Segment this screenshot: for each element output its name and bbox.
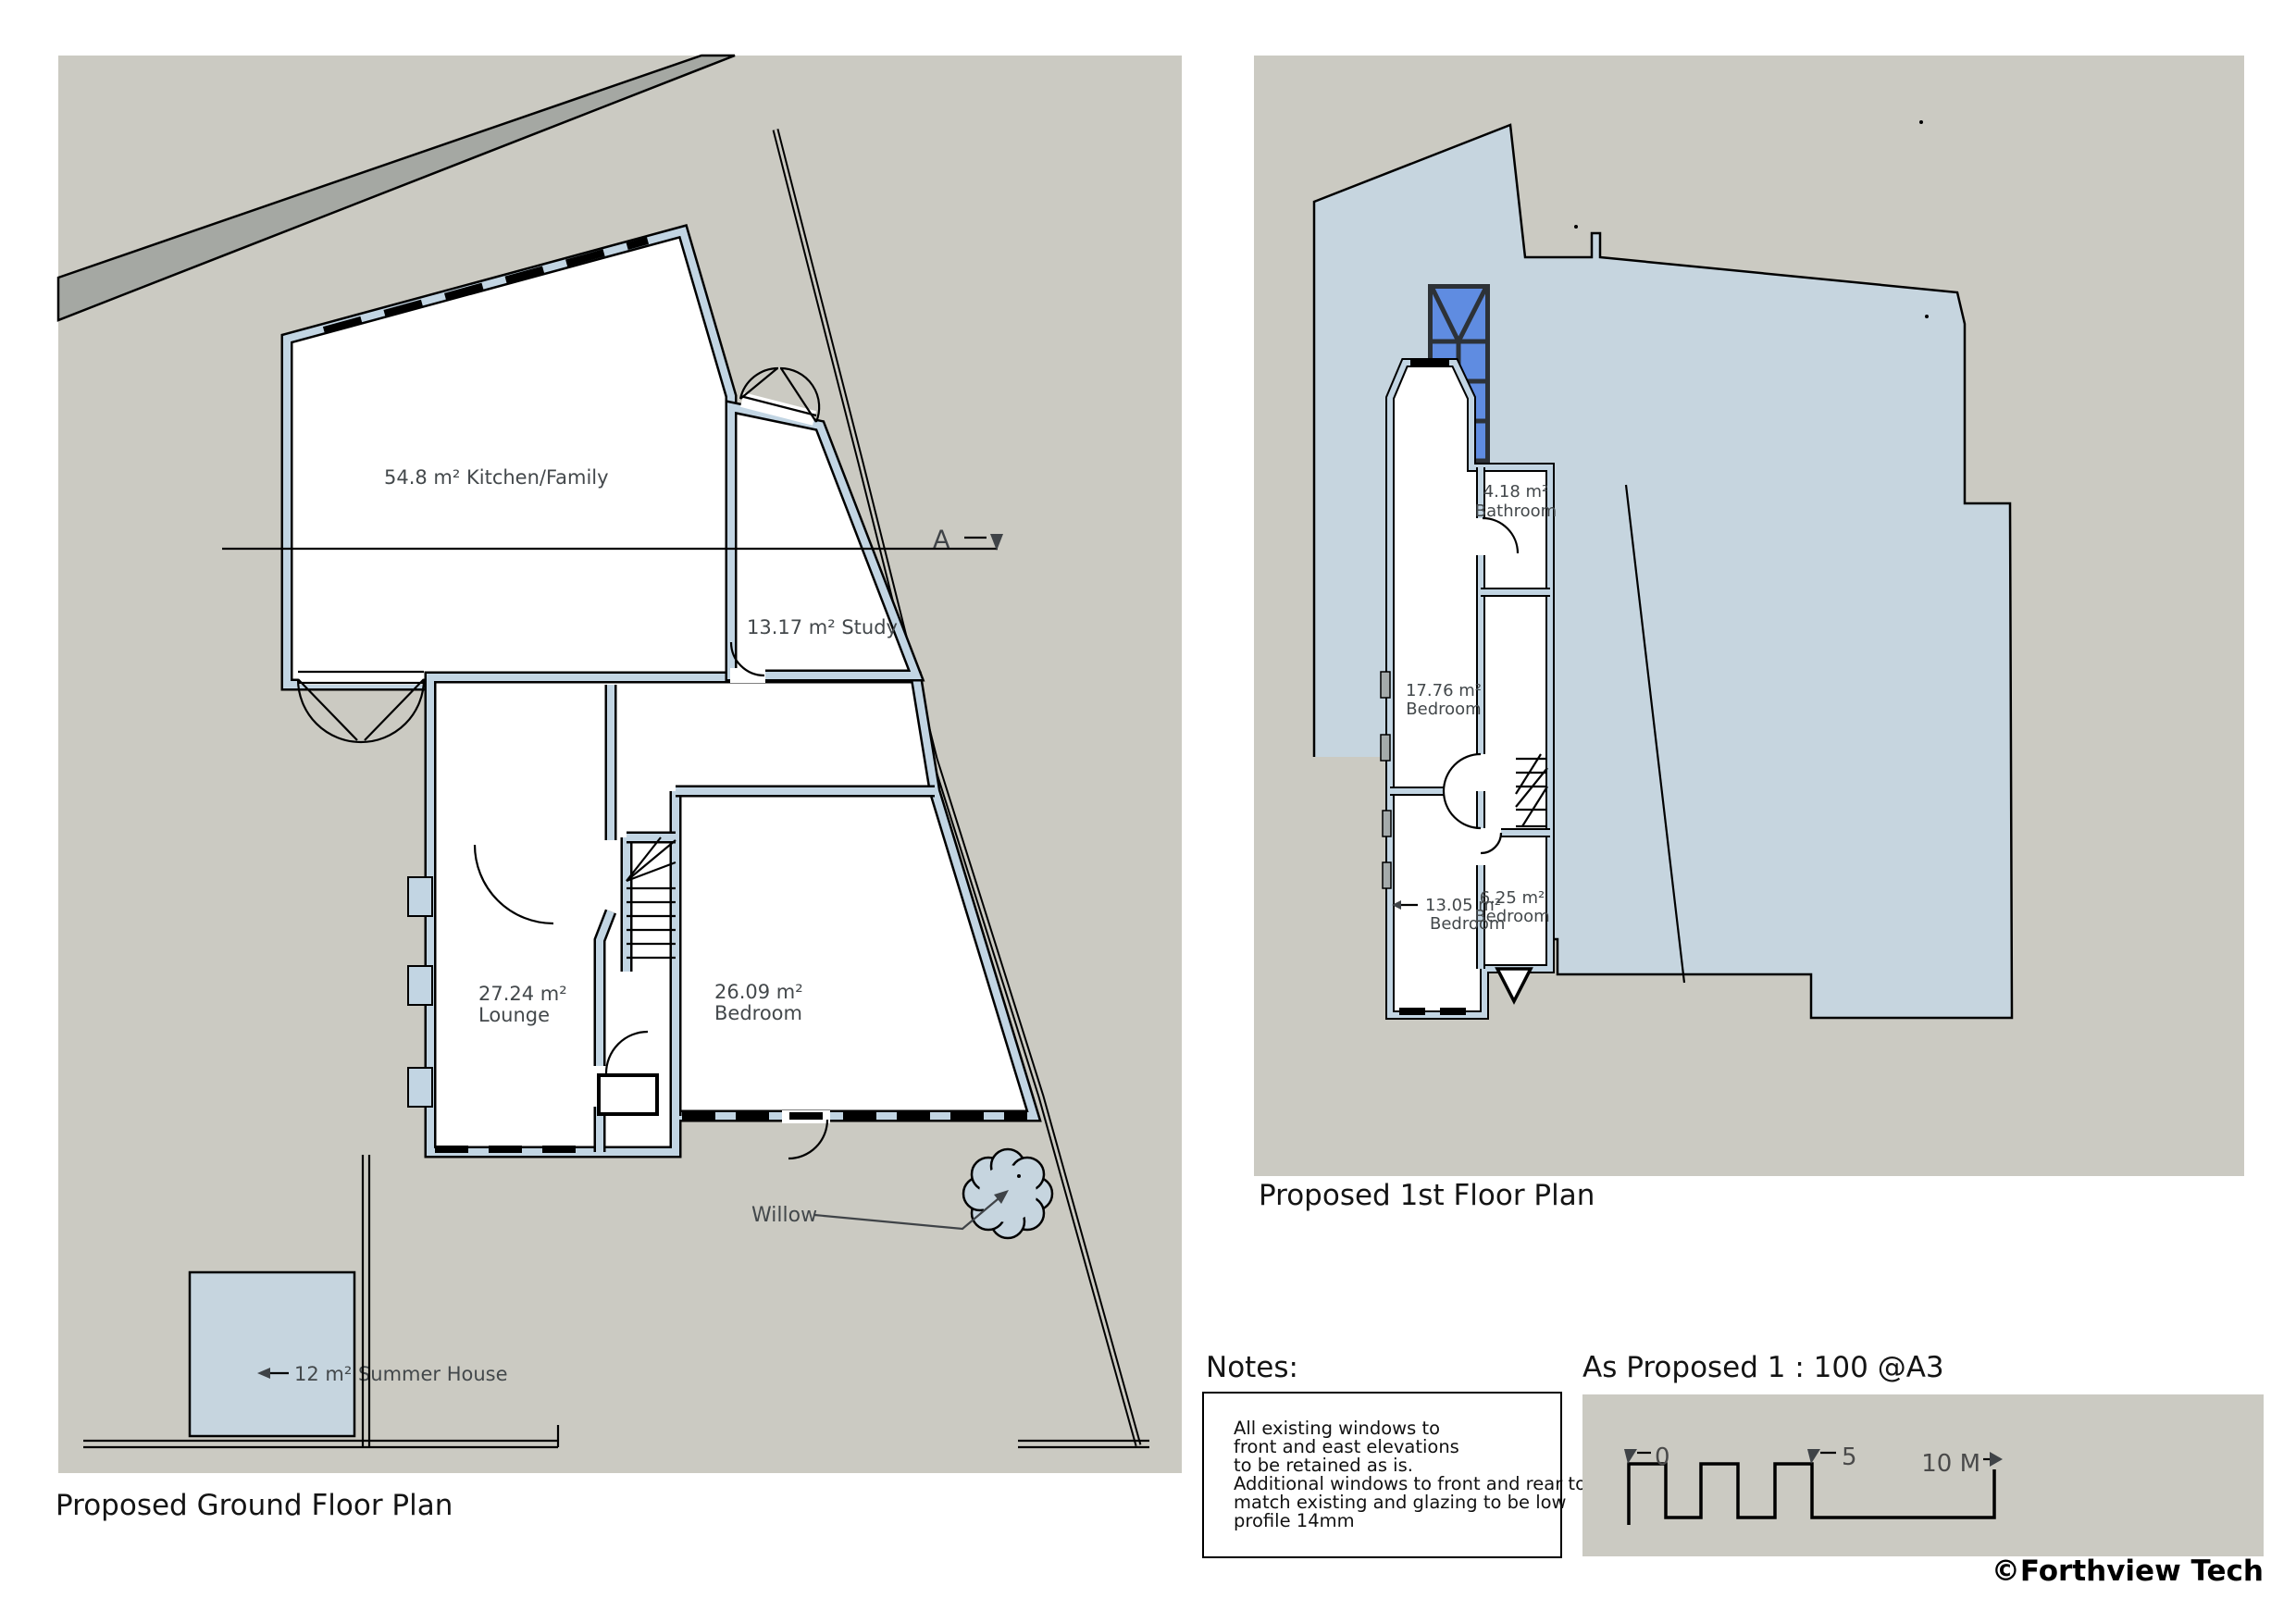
- first-floor-title: Proposed 1st Floor Plan: [1259, 1179, 1595, 1212]
- scale-tick-0: 0: [1655, 1443, 1670, 1471]
- scale-tick-5: 5: [1842, 1443, 1857, 1471]
- summer-house-label: 12 m² Summer House: [294, 1363, 508, 1385]
- first-floor-plan: 17.76 m² Bedroom 4.18 m² Bathroom 13.05 …: [1254, 56, 2244, 1212]
- bathroom-area-label: 4.18 m²: [1483, 482, 1549, 502]
- bedroom-small-name-label: Bedroom: [1474, 907, 1549, 926]
- notes-heading: Notes:: [1206, 1351, 1298, 1384]
- scale-title: As Proposed 1 : 100 @A3: [1582, 1351, 1944, 1384]
- bedroom-name-label: Bedroom: [714, 1002, 802, 1024]
- ground-floor-plan: A 12 m² Summer House Willow: [56, 56, 1182, 1522]
- notes-block: Notes: All existing windows to front and…: [1203, 1351, 1586, 1557]
- bathroom-name-label: Bathroom: [1475, 502, 1557, 521]
- scale-bar-block: As Proposed 1 : 100 @A3 0 5 10 M: [1582, 1351, 2264, 1556]
- lounge-area-label: 27.24 m²: [478, 983, 567, 1005]
- section-marker-label: A: [933, 526, 950, 554]
- scale-tick-10: 10 M: [1921, 1450, 1980, 1478]
- notes-line: profile 14mm: [1234, 1510, 1355, 1531]
- ground-floor-title: Proposed Ground Floor Plan: [56, 1489, 453, 1522]
- bedroom-main-area-label: 17.76 m²: [1406, 681, 1482, 700]
- credit-label: ©Forthview Tech: [1992, 1555, 2264, 1588]
- lounge-name-label: Lounge: [478, 1004, 550, 1026]
- bay-window: [408, 1068, 432, 1107]
- bedroom-area-label: 26.09 m²: [714, 981, 803, 1003]
- plan-canvas: A 12 m² Summer House Willow: [0, 0, 2296, 1623]
- bay-window: [408, 966, 432, 1005]
- study-label: 13.17 m² Study: [747, 616, 898, 638]
- entrance-porch: [599, 1075, 657, 1114]
- site-patch: [1301, 757, 1391, 1176]
- kitchen-label: 54.8 m² Kitchen/Family: [384, 466, 609, 489]
- bay-window: [408, 877, 432, 916]
- bedroom-small-area-label: 6.25 m²: [1480, 888, 1545, 908]
- bedroom-main-name-label: Bedroom: [1406, 700, 1481, 719]
- drawing-sheet: A 12 m² Summer House Willow: [0, 0, 2296, 1623]
- willow-label: Willow: [751, 1204, 817, 1227]
